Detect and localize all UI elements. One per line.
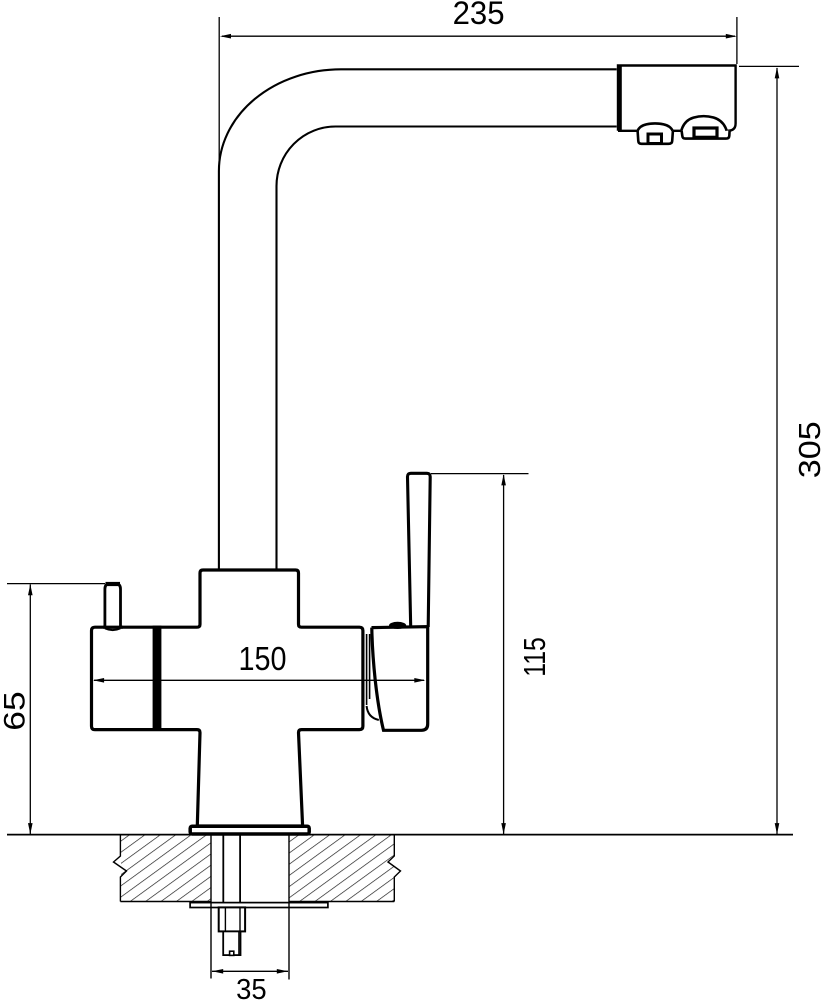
svg-text:35: 35 [236, 974, 267, 1000]
svg-text:305: 305 [792, 421, 824, 478]
svg-text:235: 235 [453, 0, 505, 31]
svg-text:65: 65 [0, 691, 31, 731]
svg-text:150: 150 [239, 640, 287, 677]
svg-text:115: 115 [517, 637, 552, 677]
